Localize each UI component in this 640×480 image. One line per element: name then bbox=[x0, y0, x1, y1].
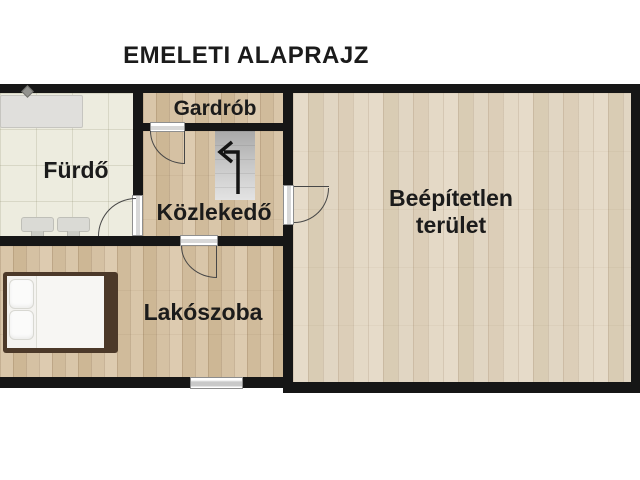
wardrobe-label: Gardrób bbox=[174, 97, 257, 121]
pillow bbox=[9, 279, 34, 309]
hallway-label: Közlekedő bbox=[156, 199, 271, 226]
bathtub bbox=[0, 95, 83, 128]
sink bbox=[21, 217, 54, 232]
wall-bathroom-hallway-upper bbox=[133, 93, 143, 195]
wall-bottom-left bbox=[0, 377, 293, 388]
door-leaf bbox=[294, 186, 329, 187]
sink bbox=[57, 217, 90, 232]
pillow bbox=[9, 310, 34, 340]
unbuilt-area-label-line2: terület bbox=[416, 212, 486, 238]
bathroom-label: Fürdő bbox=[43, 157, 108, 184]
wall-bottom-right bbox=[283, 382, 640, 393]
bed-duvet bbox=[36, 276, 104, 348]
living-room-label: Lakószoba bbox=[144, 299, 263, 326]
wall-hallway-unbuilt-lower bbox=[283, 225, 293, 393]
wall-hallway-livingroom bbox=[218, 236, 293, 246]
door-leaf bbox=[216, 246, 217, 278]
window bbox=[190, 377, 243, 389]
door-leaf bbox=[184, 131, 185, 164]
unbuilt-area-label: Beépítetlen terület bbox=[389, 185, 513, 239]
stairs-up-arrow-icon bbox=[212, 136, 252, 198]
wall-wardrobe-right bbox=[185, 123, 293, 131]
wall-bathroom-livingroom bbox=[0, 236, 180, 246]
door-unbuilt bbox=[283, 185, 294, 225]
wall-right bbox=[631, 84, 640, 393]
wall-top bbox=[0, 84, 640, 93]
unbuilt-area-label-line1: Beépítetlen bbox=[389, 185, 513, 211]
door-livingroom bbox=[180, 235, 218, 246]
floor-plan-canvas: EMELETI ALAPRAJZ Fürdő Gardrób Közlekedő… bbox=[0, 0, 640, 480]
wall-wardrobe-left bbox=[133, 123, 150, 131]
page-title: EMELETI ALAPRAJZ bbox=[123, 42, 369, 70]
wall-hallway-unbuilt-upper bbox=[283, 93, 293, 185]
